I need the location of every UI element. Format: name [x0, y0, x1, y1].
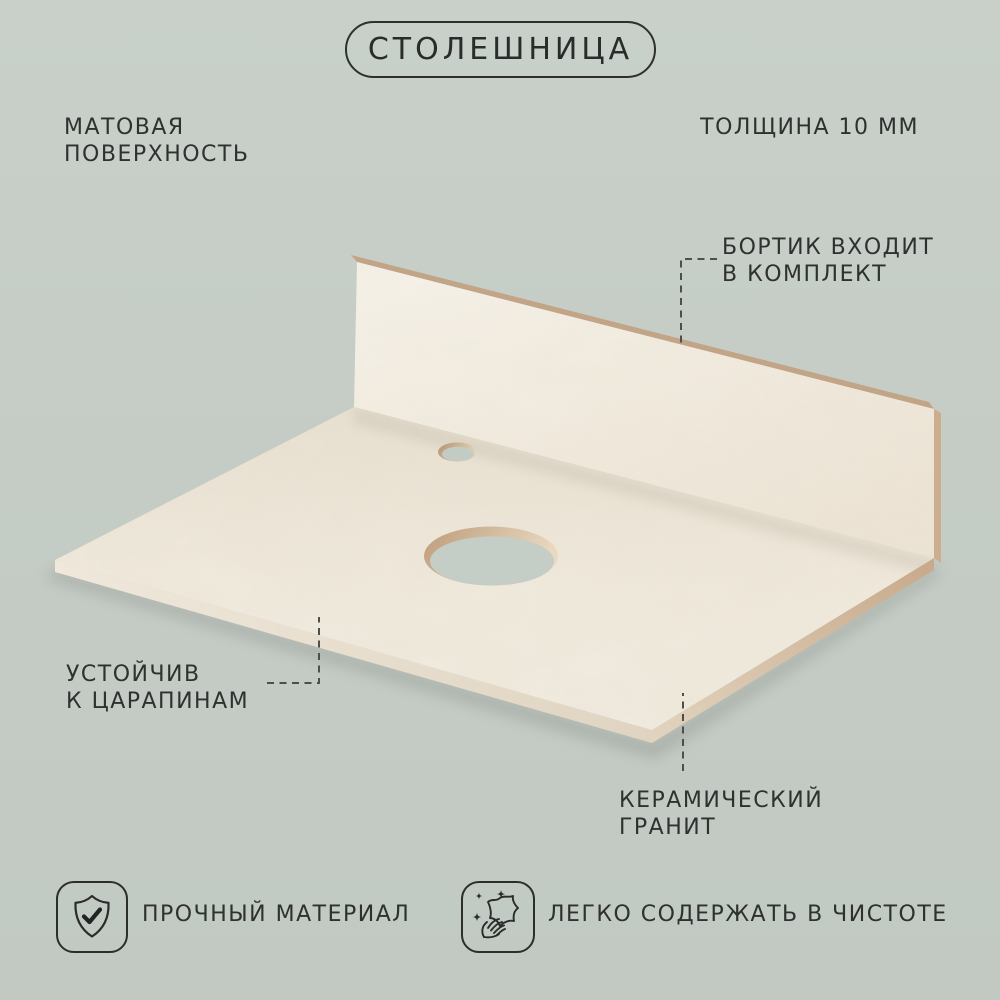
- backsplash-side-edge: [934, 409, 941, 563]
- note-scratch-resistant: УСТОЙЧИВ К ЦАРАПИНАМ: [66, 661, 249, 715]
- page-title: СТОЛЕШНИЦА: [368, 32, 633, 67]
- note-thickness: ТОЛЩИНА 10 ММ: [700, 114, 919, 141]
- note-line: УСТОЙЧИВ: [66, 661, 249, 688]
- sink-hole: [424, 527, 558, 586]
- note-ceramic-granite: КЕРАМИЧЕСКИЙ ГРАНИТ: [619, 787, 823, 841]
- sparkle-wipe-icon: [470, 888, 528, 946]
- note-line: ПОВЕРХНОСТЬ: [64, 141, 249, 168]
- note-matte-surface: МАТОВАЯ ПОВЕРХНОСТЬ: [64, 114, 249, 168]
- shield-check-icon: [70, 892, 114, 941]
- product-card: СТОЛЕШНИЦА МАТОВАЯ ПОВЕРХНОСТЬ ТОЛЩИНА 1…: [0, 0, 1000, 1000]
- note-backsplash-included: БОРТИК ВХОДИТ В КОМПЛЕКТ: [722, 234, 934, 288]
- title-badge: СТОЛЕШНИЦА: [345, 21, 656, 78]
- note-line: МАТОВАЯ: [64, 114, 249, 141]
- note-line: ТОЛЩИНА 10 ММ: [700, 114, 919, 141]
- note-line: КЕРАМИЧЕСКИЙ: [619, 787, 823, 814]
- callout-line-backsplash: [681, 259, 717, 347]
- note-line: К ЦАРАПИНАМ: [66, 688, 249, 715]
- note-line: ГРАНИТ: [619, 814, 823, 841]
- note-line: В КОМПЛЕКТ: [722, 261, 934, 288]
- badge-durable-label: ПРОЧНЫЙ МАТЕРИАЛ: [142, 901, 410, 928]
- badge-easy-clean-label: ЛЕГКО СОДЕРЖАТЬ В ЧИСТОТЕ: [548, 901, 948, 928]
- note-line: БОРТИК ВХОДИТ: [722, 234, 934, 261]
- faucet-hole: [438, 443, 476, 462]
